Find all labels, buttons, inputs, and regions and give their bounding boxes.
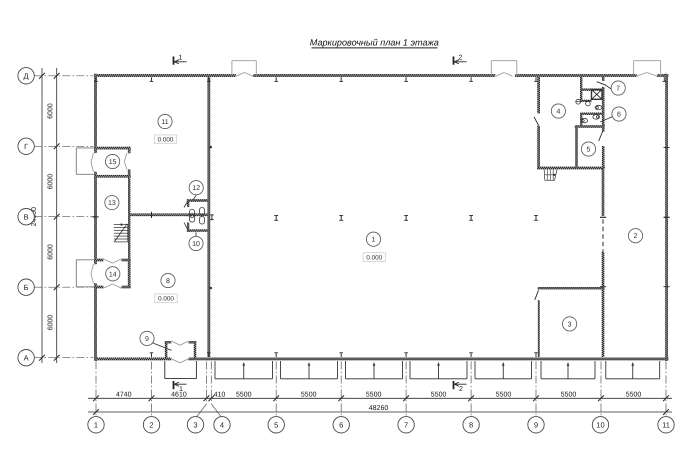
svg-text:7: 7: [616, 86, 620, 93]
svg-text:0.000: 0.000: [158, 296, 174, 303]
svg-text:10: 10: [192, 241, 200, 248]
svg-text:48260: 48260: [369, 405, 389, 412]
svg-text:6000: 6000: [47, 174, 54, 190]
svg-text:В: В: [24, 212, 29, 221]
svg-text:7: 7: [404, 421, 408, 430]
svg-text:6000: 6000: [47, 103, 54, 119]
svg-text:Маркировочный план 1 этажа: Маркировочный план 1 этажа: [310, 38, 439, 48]
svg-text:4: 4: [220, 421, 224, 430]
svg-text:6: 6: [617, 112, 621, 119]
svg-text:5: 5: [274, 421, 278, 430]
svg-text:0.000: 0.000: [158, 137, 174, 144]
svg-text:Д: Д: [24, 72, 29, 81]
svg-text:4740: 4740: [116, 391, 132, 398]
svg-text:А: А: [24, 353, 29, 362]
svg-text:4: 4: [556, 109, 560, 116]
svg-text:5500: 5500: [431, 391, 447, 398]
svg-text:9: 9: [534, 421, 538, 430]
svg-text:5500: 5500: [496, 391, 512, 398]
svg-text:6: 6: [339, 421, 343, 430]
svg-text:14: 14: [109, 271, 117, 278]
svg-text:5: 5: [587, 147, 591, 154]
svg-text:2: 2: [634, 233, 638, 240]
svg-text:12: 12: [192, 185, 200, 192]
svg-text:410: 410: [214, 391, 226, 398]
svg-text:11: 11: [161, 119, 168, 126]
svg-text:1: 1: [94, 421, 98, 430]
svg-text:5500: 5500: [561, 391, 577, 398]
svg-text:3: 3: [568, 321, 572, 328]
svg-text:Б: Б: [24, 283, 29, 292]
svg-text:1: 1: [372, 237, 376, 244]
svg-text:Г: Г: [24, 142, 28, 151]
svg-text:5500: 5500: [626, 391, 642, 398]
svg-text:2: 2: [149, 421, 153, 430]
svg-text:2: 2: [459, 386, 463, 393]
svg-text:1: 1: [179, 386, 183, 393]
svg-text:11: 11: [662, 421, 670, 430]
svg-text:10: 10: [596, 421, 604, 430]
svg-text:5500: 5500: [366, 391, 382, 398]
svg-text:6000: 6000: [47, 315, 54, 331]
svg-text:8: 8: [469, 421, 473, 430]
svg-text:3: 3: [193, 421, 197, 430]
svg-text:13: 13: [108, 200, 116, 207]
svg-text:1: 1: [179, 55, 183, 62]
svg-text:0.000: 0.000: [366, 255, 382, 262]
svg-text:6000: 6000: [47, 244, 54, 260]
svg-text:5500: 5500: [236, 391, 252, 398]
svg-text:8: 8: [166, 278, 170, 285]
svg-text:9: 9: [145, 336, 149, 343]
svg-text:2: 2: [459, 55, 463, 62]
svg-text:5500: 5500: [301, 391, 317, 398]
svg-text:15: 15: [109, 159, 117, 166]
